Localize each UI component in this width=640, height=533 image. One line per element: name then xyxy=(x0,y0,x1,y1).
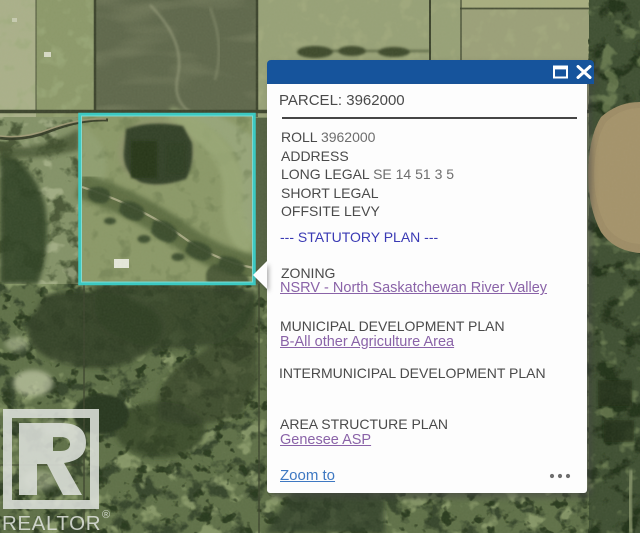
svg-text:REALTOR: REALTOR xyxy=(2,512,101,533)
svg-text:®: ® xyxy=(102,509,110,521)
